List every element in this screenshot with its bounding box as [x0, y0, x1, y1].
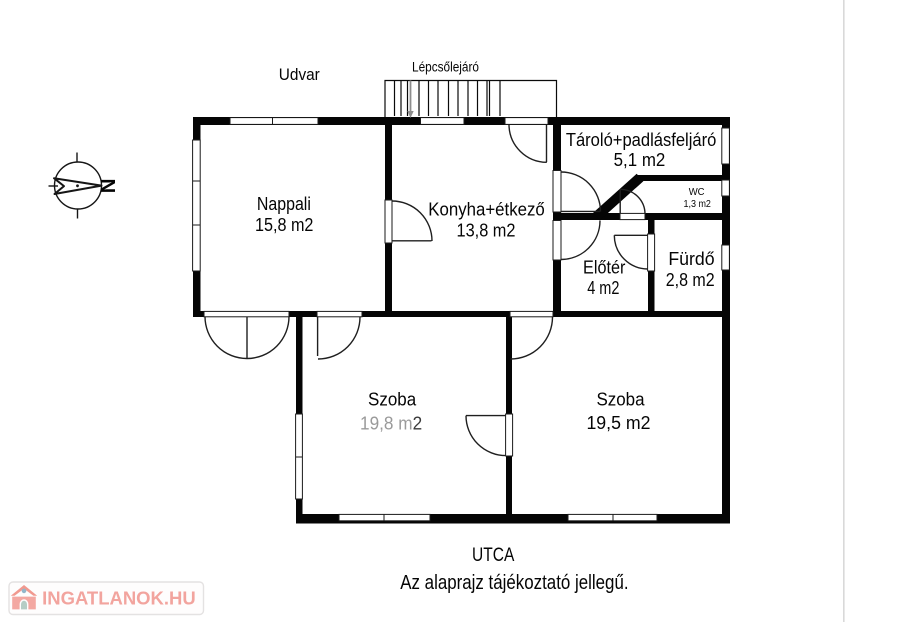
svg-text:Udvar: Udvar — [279, 65, 320, 84]
svg-text:15,8 m2: 15,8 m2 — [255, 214, 314, 235]
svg-text:Fürdő: Fürdő — [668, 248, 714, 269]
svg-text:Konyha+étkező: Konyha+étkező — [428, 198, 545, 219]
svg-text:13,8 m2: 13,8 m2 — [457, 220, 516, 241]
svg-text:5,1 m2: 5,1 m2 — [614, 150, 666, 170]
svg-text:2,8 m2: 2,8 m2 — [666, 269, 715, 290]
svg-text:Előtér: Előtér — [583, 257, 625, 278]
svg-text:Az alaprajz tájékoztató jelleg: Az alaprajz tájékoztató jellegű. — [400, 571, 628, 594]
svg-text:Szoba: Szoba — [368, 389, 417, 410]
svg-text:N: N — [96, 178, 119, 193]
svg-text:WC: WC — [689, 186, 705, 198]
svg-text:4 m2: 4 m2 — [587, 277, 619, 298]
svg-text:19,8 m2: 19,8 m2 — [360, 412, 422, 433]
svg-text:Szoba: Szoba — [596, 389, 645, 410]
svg-text:INGATLANOK.HU: INGATLANOK.HU — [42, 589, 196, 609]
svg-text:Tároló+padlásfeljáró: Tároló+padlásfeljáró — [566, 130, 717, 150]
svg-text:19,5 m2: 19,5 m2 — [586, 412, 650, 433]
svg-text:Nappali: Nappali — [257, 193, 311, 214]
svg-text:UTCA: UTCA — [472, 545, 515, 566]
svg-text:Lépcsőlejáró: Lépcsőlejáró — [412, 60, 479, 75]
svg-text:1,3 m2: 1,3 m2 — [683, 198, 711, 210]
